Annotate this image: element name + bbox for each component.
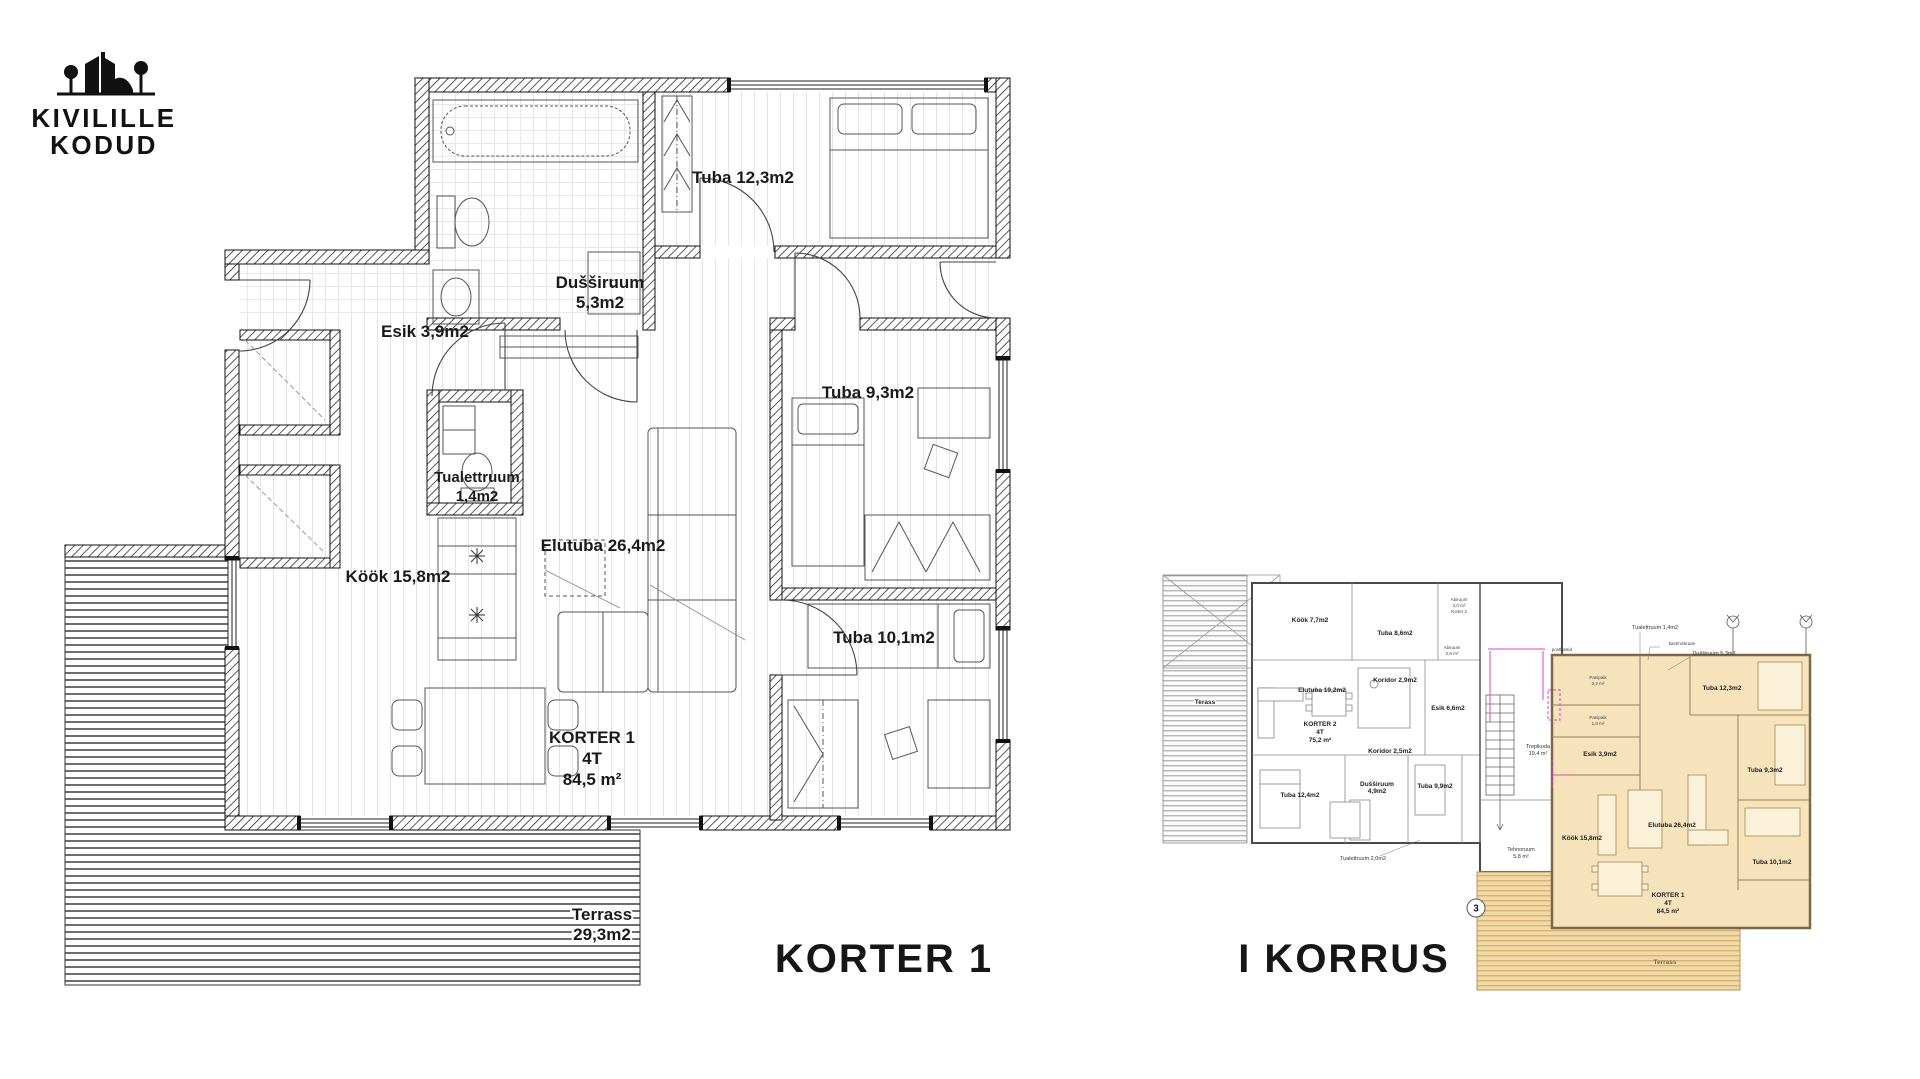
room-label-dussiruum: Dušširuum (556, 273, 645, 292)
terrass-label: Terrass (572, 905, 632, 924)
ov-label: 1,8 m² (1592, 721, 1605, 726)
ov-label: 84,5 m² (1657, 908, 1680, 915)
ov-label: Tehnoruum (1507, 847, 1535, 853)
ov-label: Dušširuum (1360, 781, 1394, 788)
apartment-type: 4T (582, 749, 602, 768)
window (996, 356, 1010, 473)
ov-label: Abiruum (1451, 597, 1468, 602)
section-marker-number: 3 (1473, 904, 1479, 915)
room-label-esik: Esik 3,9m2 (381, 322, 469, 341)
floor-plan-sheet: KIVILILLE KODUD (0, 0, 1920, 1079)
terrass-area-label: 29,3m2 (573, 925, 631, 944)
ov-label: 75,2 m² (1309, 737, 1332, 744)
window (607, 816, 703, 830)
ov-label: Esik 3,9m2 (1583, 751, 1617, 758)
stove-burner (469, 548, 485, 564)
ov-label: Elutuba 26,4m2 (1648, 822, 1696, 829)
ov-label: 4T (1664, 900, 1672, 907)
section-marker: 3 (1467, 899, 1485, 917)
apartment-name: KORTER 1 (549, 728, 635, 747)
ov-leader-label: postkastid (1552, 647, 1573, 652)
room-label-tuba10: Tuba 10,1m2 (833, 628, 935, 647)
ov-leader-label: Dušširuum 5,3m2 (1692, 651, 1735, 657)
ov-label: Tuba 12,4m2 (1281, 792, 1320, 799)
window (727, 78, 988, 92)
apartment-area: 84,5 m² (563, 770, 622, 789)
ov-label: Tuba 8,6m2 (1377, 630, 1413, 637)
ov-label: Elutuba 19,2m2 (1298, 687, 1346, 694)
ov-label: Tualettruum 2,0m2 (1340, 856, 1386, 862)
overview-korter2: Köök 7,7m2 Tuba 8,6m2 Abiruum 3,0 m² Kor… (1252, 583, 1562, 872)
overview-korter1: Panipaik 3,2 m² Panipaik 1,8 m² Esik 3,9… (1552, 655, 1810, 928)
ov-label: Abiruum (1444, 645, 1461, 650)
room-label-elutuba: Elutuba 26,4m2 (541, 536, 666, 555)
ov-label: 2,8 m² (1446, 651, 1459, 656)
ov-label: 3,0 m² (1453, 603, 1466, 608)
stove-burner (469, 607, 485, 623)
ov-label: 4,9m2 (1368, 788, 1387, 795)
ov-label: Panipaik (1589, 675, 1607, 680)
ov-label: Koridor 2,9m2 (1373, 677, 1417, 684)
ov-label: KORTER 2 (1304, 721, 1337, 728)
window (297, 816, 393, 830)
ov-label: Esik 6,6m2 (1431, 705, 1465, 712)
room-label-tuba12: Tuba 12,3m2 (692, 168, 794, 187)
ov-label: 4T (1316, 729, 1324, 736)
window (837, 816, 933, 830)
room-label-tualettruum: Tualettruum (434, 469, 520, 486)
main-plan-floor (239, 92, 996, 816)
vent-symbol (1727, 615, 1739, 655)
ov-label: Trepikoda (1526, 744, 1551, 750)
caption-ikorrus: I KORRUS (1238, 937, 1450, 981)
ov-label: Koridor 2,5m2 (1368, 748, 1412, 755)
ov-leader-label: Tualettruum 1,4m2 (1632, 625, 1678, 631)
overview-terass-label: Terass (1195, 699, 1216, 706)
ov-label: Köök 15,8m2 (1562, 835, 1602, 842)
ov-label: 19,4 m² (1529, 751, 1548, 757)
ov-label: Tuba 10,1m2 (1753, 859, 1792, 866)
ov-label: Köök 7,7m2 (1292, 617, 1329, 624)
plan-canvas: Terrass 29,3m2 (0, 0, 1920, 1079)
ov-label: Tuba 9,9m2 (1417, 783, 1453, 790)
room-label-tuba9: Tuba 9,3m2 (822, 383, 914, 402)
ov-label: KORTER 1 (1652, 892, 1685, 899)
ov-label: 5,8 m² (1513, 854, 1529, 860)
vent-symbol (1800, 615, 1812, 655)
ov-label: Panipaik (1589, 715, 1607, 720)
window (996, 626, 1010, 743)
ov-label: 3,2 m² (1592, 681, 1605, 686)
ov-label: Tuba 12,3m2 (1703, 685, 1742, 692)
ov-leader-label: kastmiskraan (1669, 641, 1696, 646)
ov-label: Terrass (1653, 959, 1676, 966)
overview-plan: Terass (1163, 575, 1812, 990)
ov-label: Korter 2 (1451, 609, 1468, 614)
main-floor-plan: Tuba 12,3m2 Dušširuum 5,3m2 Esik 3,9m2 T… (225, 78, 1010, 830)
ov-label: Tuba 9,3m2 (1747, 767, 1783, 774)
room-label-dussiruum-area: 5,3m2 (576, 293, 624, 312)
room-label-tualettruum-area: 1,4m2 (456, 488, 499, 505)
room-label-kook: Köök 15,8m2 (346, 567, 451, 586)
caption-korter1: KORTER 1 (775, 937, 993, 981)
